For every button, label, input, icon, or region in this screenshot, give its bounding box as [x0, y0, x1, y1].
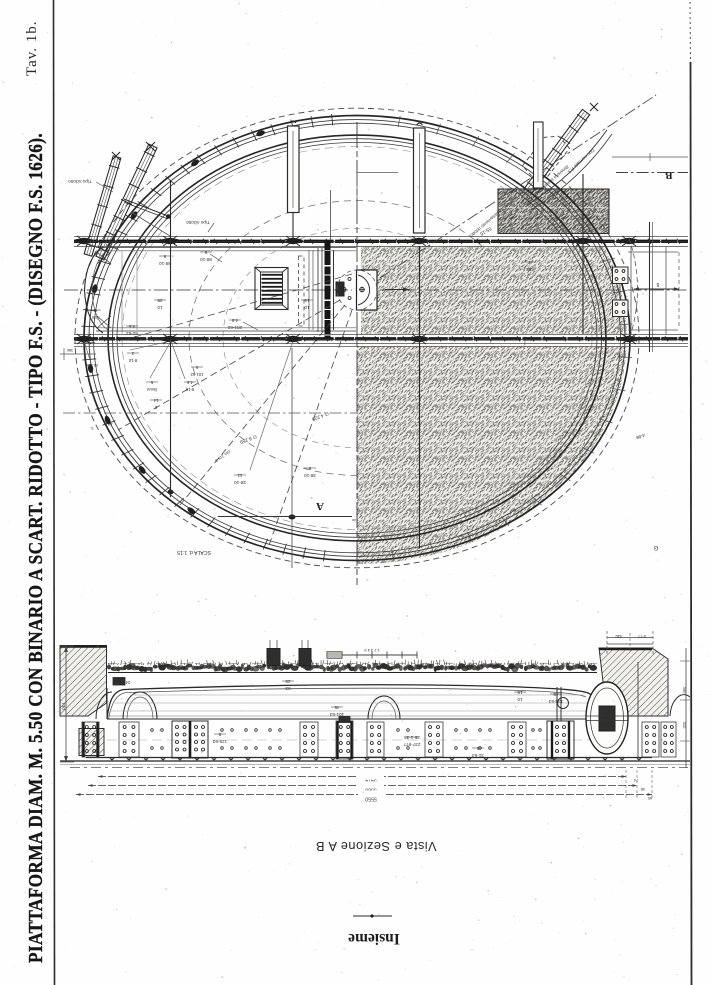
svg-text:1 2 3 4 5: 1 2 3 4 5 — [363, 648, 379, 653]
svg-text:5: 5 — [204, 250, 207, 255]
svg-text:4-77: 4-77 — [637, 634, 646, 639]
svg-text:G: G — [653, 544, 658, 550]
svg-text:45: 45 — [553, 692, 559, 697]
svg-text:237-977: 237-977 — [403, 742, 420, 747]
svg-text:linear: linear — [146, 387, 157, 392]
svg-text:9: 9 — [218, 732, 221, 737]
svg-text:9: 9 — [163, 254, 166, 259]
svg-text:29: 29 — [285, 679, 291, 684]
svg-text:10: 10 — [157, 305, 163, 310]
svg-text:-60-: -60- — [106, 422, 114, 427]
svg-text:5: 5 — [195, 365, 198, 370]
svg-text:5: 5 — [308, 466, 311, 471]
svg-text:28-10: 28-10 — [234, 480, 246, 485]
svg-text:4.5: 4.5 — [231, 318, 238, 323]
svg-text:101-62: 101-62 — [190, 372, 204, 377]
svg-text:4.5: 4.5 — [186, 380, 192, 385]
svg-text:10: 10 — [517, 697, 523, 702]
svg-text:38-10: 38-10 — [304, 473, 316, 478]
svg-text:310: 310 — [682, 722, 687, 729]
svg-text:8-10: 8-10 — [128, 358, 137, 363]
svg-text:Tipo ridotto: Tipo ridotto — [186, 219, 210, 225]
svg-text:10: 10 — [304, 305, 310, 310]
svg-text:Insieme: Insieme — [348, 930, 400, 947]
svg-text:∅ 6.259: ∅ 6.259 — [239, 433, 258, 445]
svg-text:350: 350 — [526, 267, 534, 272]
svg-text:Gm 216-8: Gm 216-8 — [214, 449, 232, 464]
svg-text:09-an8: 09-an8 — [85, 363, 98, 368]
svg-text:∅ 4.225: ∅ 4.225 — [311, 410, 330, 422]
svg-text:125-93: 125-93 — [212, 739, 227, 744]
svg-text:45: 45 — [334, 705, 340, 710]
svg-text:4.5: 4.5 — [128, 324, 135, 329]
svg-text:5550: 5550 — [365, 795, 377, 801]
svg-text:5: 5 — [476, 746, 479, 751]
svg-text:360: 360 — [682, 687, 687, 694]
svg-text:101-63: 101-63 — [329, 712, 344, 717]
svg-text:B: B — [665, 169, 673, 181]
svg-text:24-93: 24-93 — [119, 680, 130, 685]
svg-text:8-10: 8-10 — [185, 387, 194, 392]
svg-text:A: A — [316, 500, 324, 512]
svg-text:3: 3 — [93, 308, 96, 313]
svg-text:730: 730 — [61, 702, 66, 710]
svg-text:δ: δ — [656, 281, 659, 287]
svg-text:60: 60 — [648, 796, 652, 800]
svg-text:11: 11 — [237, 473, 242, 478]
svg-text:2: 2 — [154, 405, 157, 410]
svg-text:18: 18 — [517, 690, 523, 695]
svg-text:km: km — [92, 315, 98, 320]
svg-text:5: 5 — [150, 380, 153, 385]
svg-text:281-62: 281-62 — [227, 325, 242, 330]
svg-text:38: 38 — [641, 787, 645, 791]
svg-text:3: 3 — [131, 351, 134, 356]
svg-text:Tipo ridotto: Tipo ridotto — [68, 178, 92, 184]
svg-text:25-1-35: 25-1-35 — [404, 735, 420, 740]
svg-text:88-10: 88-10 — [200, 257, 212, 262]
svg-text:81-62: 81-62 — [126, 331, 138, 336]
svg-text:386: 386 — [67, 348, 73, 352]
svg-text:16: 16 — [304, 298, 310, 303]
svg-text:74: 74 — [634, 778, 638, 782]
svg-text:133-63: 133-63 — [548, 699, 563, 704]
svg-text:88-10: 88-10 — [159, 261, 171, 266]
svg-text:14: 14 — [153, 398, 158, 403]
svg-text:SCALA d. 1:15: SCALA d. 1:15 — [177, 549, 211, 555]
svg-text:PIATTAFORMA DIAM. M. 5.50 CON: PIATTAFORMA DIAM. M. 5.50 CON BINARIO A … — [25, 133, 47, 963]
svg-text:3.: 3. — [90, 426, 93, 431]
svg-text:430: 430 — [615, 634, 623, 639]
svg-text:4-88: 4-88 — [635, 433, 646, 441]
svg-text:38: 38 — [157, 298, 163, 303]
svg-text:Vista e Sezione A B: Vista e Sezione A B — [316, 839, 437, 854]
svg-text:63: 63 — [285, 686, 291, 691]
svg-text:Tav. 1b.: Tav. 1b. — [24, 20, 40, 76]
svg-text:31-63: 31-63 — [472, 753, 484, 758]
svg-text:4: 4 — [528, 260, 531, 265]
